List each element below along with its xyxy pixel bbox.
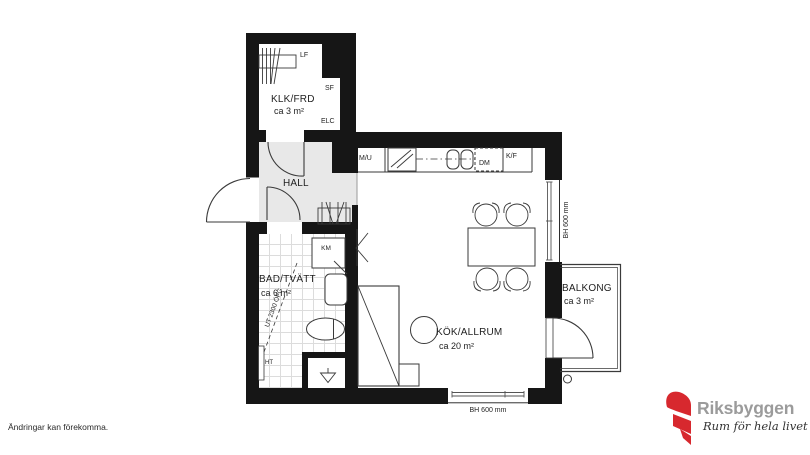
windows — [448, 180, 560, 403]
label-lf: LF — [300, 52, 308, 59]
towel-dryer-icon — [259, 346, 265, 380]
balcony-outline — [560, 265, 621, 372]
room-label-klk: KLK/FRD — [271, 95, 315, 105]
window-right — [546, 180, 560, 262]
dining-table-icon — [468, 228, 535, 266]
window-bottom — [448, 391, 528, 403]
stove-icon — [388, 148, 416, 171]
furniture — [356, 203, 535, 386]
label-dm: DM — [479, 160, 490, 167]
brand-tagline: Rum för hela livet — [703, 421, 808, 433]
label-bh-right: BH 600 mm — [563, 190, 573, 250]
floorplan-page: LF SF ELC KLK/FRD ca 3 m² HALL M/U DM K/… — [0, 0, 810, 455]
room-area-klk: ca 3 m² — [274, 107, 304, 116]
label-elc: ELC — [321, 118, 335, 125]
room-label-hall: HALL — [283, 179, 309, 189]
label-kf: K/F — [506, 153, 517, 160]
room-label-kok: KÖK/ALLRUM — [436, 328, 502, 338]
room-area-balkong: ca 3 m² — [564, 297, 594, 306]
round-table-icon — [411, 317, 438, 344]
room-area-kok: ca 20 m² — [439, 342, 474, 351]
label-km: KM — [312, 246, 340, 253]
entry-door — [207, 179, 251, 223]
toilet-icon — [307, 318, 345, 340]
label-mu: M/U — [359, 155, 372, 162]
washing-machine-icon — [312, 238, 345, 268]
label-ht: HT — [265, 360, 273, 366]
floorplan-drawing — [0, 0, 810, 455]
label-bh-bottom: BH 600 mm — [448, 407, 528, 414]
washbasin-icon — [325, 274, 347, 305]
drainpipe-icon — [564, 375, 572, 383]
disclaimer-text: Ändringar kan förekomma. — [8, 423, 108, 432]
sink-icon — [447, 150, 459, 169]
closet-rail-icon — [259, 48, 296, 84]
room-label-balkong: BALKONG — [562, 284, 612, 294]
riksbyggen-logo-mark — [666, 392, 691, 445]
brand-name: Riksbyggen — [697, 400, 794, 418]
nightstand-icon — [399, 364, 419, 386]
label-sf: SF — [325, 85, 334, 92]
balcony-door — [546, 318, 593, 358]
kitchen-counter — [358, 148, 532, 172]
